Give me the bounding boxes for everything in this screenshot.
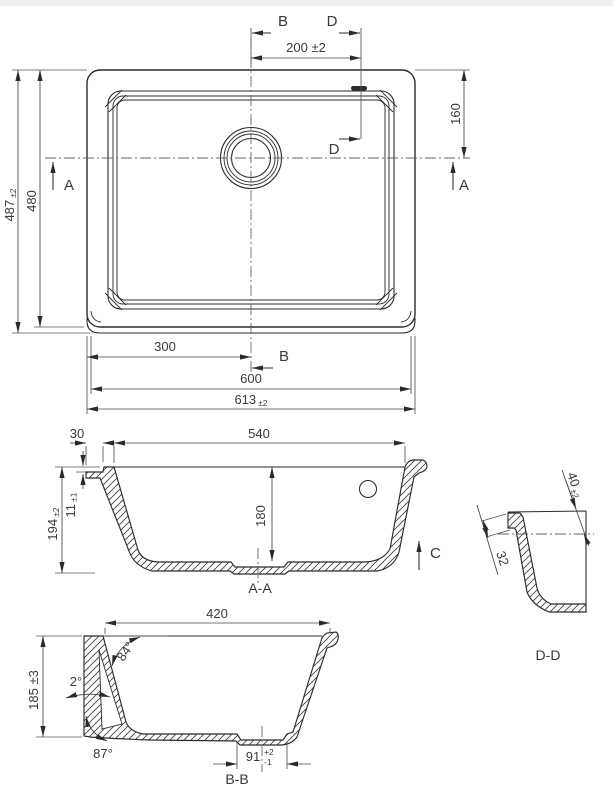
- overflow-hole-section: [360, 481, 377, 498]
- section-label-b-top: B: [278, 13, 288, 30]
- dim-194: 194±2: [45, 507, 61, 540]
- dim-160: 160: [448, 103, 463, 125]
- dim-613: 613±2: [234, 392, 267, 408]
- dim-420: 420: [206, 606, 228, 621]
- section-label-a-left: A: [64, 177, 74, 194]
- angle-87: 87°: [93, 746, 113, 761]
- section-label-d-top: D: [327, 13, 338, 30]
- section-bb: 420 185 ±3 84° 2° 87° 91 +2 -1 B-B: [26, 606, 338, 787]
- dim-91: 91: [246, 749, 260, 764]
- sink-technical-drawing: B D 200 ±2 160 487±2 480 A A 300 B D 600…: [0, 0, 613, 800]
- dim-540: 540: [248, 426, 270, 441]
- dim-32: 32: [493, 549, 512, 568]
- dim-91-tol-plus: +2: [264, 747, 274, 757]
- angle-2: 2°: [70, 674, 82, 689]
- section-label-c: C: [430, 545, 441, 562]
- overflow-slot: [351, 86, 367, 91]
- section-label-a-right: A: [459, 177, 469, 194]
- dim-line-32: [477, 505, 498, 575]
- section-aa: 30 540 11±1 194±2 180 C A-A: [45, 426, 441, 596]
- section-title-bb: B-B: [225, 771, 248, 787]
- plan-view: B D 200 ±2 160 487±2 480 A A 300 B D 600…: [2, 13, 470, 414]
- section-label-d-mid: D: [329, 141, 340, 158]
- dim-200: 200 ±2: [286, 40, 326, 55]
- dim-480: 480: [24, 190, 39, 212]
- angle-84: 84°: [114, 639, 138, 664]
- dim-40: 40±2: [563, 470, 587, 500]
- section-title-aa: A-A: [248, 580, 272, 596]
- technical-drawing-page: B D 200 ±2 160 487±2 480 A A 300 B D 600…: [0, 0, 613, 800]
- dim-487: 487±2: [2, 188, 18, 221]
- detail-dd: 40±2 32 D-D: [477, 470, 594, 663]
- detail-title-dd: D-D: [536, 647, 561, 663]
- dim-30: 30: [70, 426, 84, 441]
- plan-extension-lines: [12, 28, 470, 414]
- section-label-b-bottom: B: [279, 348, 289, 365]
- dim-300: 300: [154, 339, 176, 354]
- dim-185: 185 ±3: [26, 670, 41, 710]
- detail-dd-rim-body: [508, 513, 586, 612]
- dim-180: 180: [253, 505, 268, 527]
- dim-600: 600: [240, 371, 262, 386]
- dim-11: 11±1: [63, 492, 79, 517]
- dim-91-tol-minus: -1: [264, 757, 272, 767]
- section-bb-extension-lines: [36, 628, 330, 769]
- section-aa-extension-lines: [55, 446, 405, 573]
